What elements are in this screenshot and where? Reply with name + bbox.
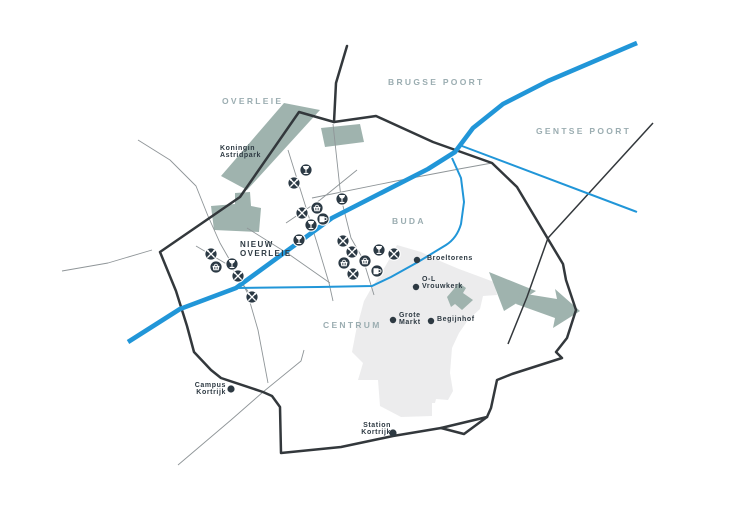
centrum-label: CENTRUM [323,320,382,330]
park-rect [321,124,364,147]
poi-restaurant-marker [288,177,300,189]
campus-kortrijk-label: CampusKortrijk [195,382,226,397]
brugse-poort-label: BRUGSE POORT [388,77,485,87]
campus-kortrijk-dot [227,385,234,392]
map-graphic [0,0,736,521]
poi-bar-marker [336,193,348,205]
poi-restaurant-marker [232,270,244,282]
canal [462,146,637,212]
poi-restaurant-marker [388,248,400,260]
poi-bar-marker [293,234,305,246]
buda-label: BUDA [392,216,426,226]
north-road [334,46,347,122]
poi-restaurant-marker [205,248,217,260]
poi-bar-marker [373,244,385,256]
poi-restaurant-marker [246,291,258,303]
gentse-poort-label: GENTSE POORT [536,126,631,136]
poi-bar-marker [300,164,312,176]
overleie-label: OVERLEIE [222,96,283,106]
poi-shop-marker [311,202,323,214]
poi-cafe-marker [317,213,329,225]
poi-restaurant-marker [347,268,359,280]
gentse-steenweg [508,123,653,344]
kortrijk-district-map: OVERLEIEBRUGSE POORTGENTSE POORTBUDACENT… [0,0,736,521]
grote-markt-label: GroteMarkt [399,312,421,327]
poi-shop-marker [210,261,222,273]
poi-bar-marker [226,258,238,270]
station-kortrijk-label: StationKortrijk [361,422,391,437]
poi-restaurant-marker [337,235,349,247]
poi-restaurant-marker [346,246,358,258]
poi-shop-marker [338,257,350,269]
broeltorens-dot [414,257,420,263]
broeltorens-label: Broeltorens [427,255,473,262]
poi-markers [205,164,400,303]
poi-shop-marker [359,255,371,267]
begijnhof-dot [428,318,434,324]
nieuw-overleie-label: NIEUWOVERLEIE [240,240,292,258]
koningin-astridpark-label: KoninginAstridpark [220,145,261,160]
o-l-vrouwkerk-dot [413,284,419,290]
poi-cafe-marker [371,265,383,277]
grote-markt-dot [390,317,396,323]
poi-bar-marker [305,219,317,231]
poi-restaurant-marker [296,207,308,219]
begijnhof-label: Begijnhof [437,316,475,323]
o-l-vrouwkerk-label: O-LVrouwkerk [422,276,463,291]
